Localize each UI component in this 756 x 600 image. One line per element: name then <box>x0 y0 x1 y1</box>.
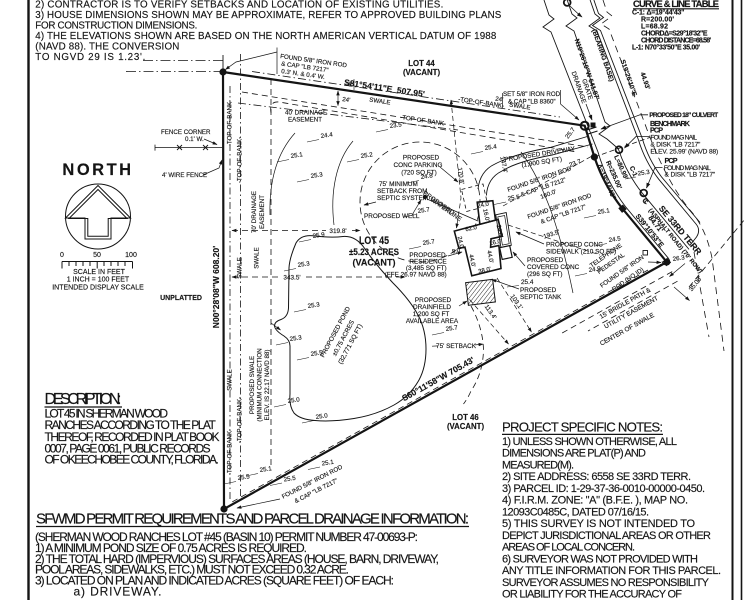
svg-text:-TOP-OF-BANK-: -TOP-OF-BANK- <box>237 137 244 183</box>
svg-text:L-1: N70°33'50"E 35.00': L-1: N70°33'50"E 35.00' <box>632 44 700 52</box>
svg-text:DEPICT JURISDICTIONAL AREAS OR: DEPICT JURISDICTIONAL AREAS OR OTHER <box>502 530 711 542</box>
svg-text:0.1' W.: 0.1' W. <box>185 136 204 143</box>
svg-text:25.7: 25.7 <box>445 324 458 333</box>
svg-text:PROPOSED WELL: PROPOSED WELL <box>364 213 420 220</box>
svg-text:CHORD DISTANCE=68.58': CHORD DISTANCE=68.58' <box>641 38 711 45</box>
svg-text:EASEMENT: EASEMENT <box>259 195 266 229</box>
svg-text:SURVEYOR ASSUMES NO RESPONSIBI: SURVEYOR ASSUMES NO RESPONSIBILITY <box>502 577 710 589</box>
svg-text:SWALE: SWALE <box>254 247 261 268</box>
svg-text:C-1: Δ=19°44'43": C-1: Δ=19°44'43" <box>632 9 685 17</box>
svg-text:25.9: 25.9 <box>312 231 325 240</box>
svg-text:1) UNLESS SHOWN OTHERWISE, ALL: 1) UNLESS SHOWN OTHERWISE, ALL <box>502 436 677 448</box>
svg-text:PROPOSED: PROPOSED <box>520 287 557 294</box>
svg-text:25.4: 25.4 <box>484 143 497 152</box>
svg-text:44.0': 44.0' <box>467 254 476 268</box>
svg-text:(FFE 26.97 NAVD 88): (FFE 26.97 NAVD 88) <box>385 272 447 279</box>
svg-text:113.4': 113.4' <box>483 303 498 320</box>
svg-text:100: 100 <box>125 252 137 259</box>
svg-text:UNPLATTED: UNPLATTED <box>160 295 202 302</box>
svg-text:24': 24' <box>342 96 351 104</box>
svg-text:CHORDΔ=S29°18'32"E: CHORDΔ=S29°18'32"E <box>641 30 708 38</box>
svg-text:4' WIRE FENCE: 4' WIRE FENCE <box>162 172 207 179</box>
svg-text:LOT 46: LOT 46 <box>452 413 479 422</box>
svg-text:25.5: 25.5 <box>237 473 250 482</box>
svg-text:4) F.I.R.M. ZONE: "A" (B.F.E.: 4) F.I.R.M. ZONE: "A" (B.F.E. ), MAP NO. <box>502 495 688 507</box>
svg-text:COVERED CONC: COVERED CONC <box>527 264 580 271</box>
svg-text:0: 0 <box>60 252 64 259</box>
svg-text:DRAINFIELD: DRAINFIELD <box>413 304 451 311</box>
svg-text:& DISK "LB 7217": & DISK "LB 7217" <box>650 141 701 148</box>
svg-text:25.0: 25.0 <box>315 412 328 421</box>
svg-text:25.1: 25.1 <box>290 151 303 160</box>
svg-text:12093C0485C, DATED 07/16/15.: 12093C0485C, DATED 07/16/15. <box>502 507 649 519</box>
svg-text:ELEV. 25.99' (NAVD 88): ELEV. 25.99' (NAVD 88) <box>650 148 718 155</box>
svg-text:TO NGVD 29 IS 1.23'.: TO NGVD 29 IS 1.23'. <box>35 52 145 63</box>
svg-text:70' DRAINAGE: 70' DRAINAGE <box>251 191 258 233</box>
svg-text:-TOP-OF-BANK-: -TOP-OF-BANK- <box>227 429 234 475</box>
svg-text:-TOP-OF-BANK-: -TOP-OF-BANK- <box>227 100 234 146</box>
svg-text:& CAP "LB 8360": & CAP "LB 8360" <box>508 99 556 106</box>
svg-text:SIDEWALK (210 SQ FT): SIDEWALK (210 SQ FT) <box>546 249 616 256</box>
svg-text:SET 5/8" IRON ROD: SET 5/8" IRON ROD <box>503 91 561 98</box>
svg-text:25.3: 25.3 <box>310 171 323 180</box>
svg-text:25.3: 25.3 <box>307 301 320 310</box>
svg-text:SWALE: SWALE <box>237 257 244 278</box>
svg-text:25.3: 25.3 <box>297 260 310 269</box>
svg-text:50: 50 <box>93 252 101 259</box>
svg-text:PROPOSED: PROPOSED <box>403 155 440 162</box>
svg-text:SETBACK FROM: SETBACK FROM <box>377 188 427 195</box>
svg-text:24.8: 24.8 <box>420 172 433 181</box>
svg-text:343.5': 343.5' <box>283 275 300 282</box>
svg-text:PROPOSED CONC: PROPOSED CONC <box>546 242 603 249</box>
svg-text:L=68.92: L=68.92 <box>641 24 668 31</box>
svg-text:(VACANT): (VACANT) <box>447 422 485 431</box>
svg-text:319.8': 319.8' <box>329 228 346 235</box>
svg-text:DIMENSIONS ARE PLAT(P) AND: DIMENSIONS ARE PLAT(P) AND <box>502 448 646 460</box>
svg-text:25.1: 25.1 <box>597 207 610 216</box>
svg-text:PROPOSED: PROPOSED <box>527 257 564 264</box>
svg-text:(VACANT): (VACANT) <box>403 68 441 77</box>
svg-text:25.5: 25.5 <box>283 475 296 484</box>
svg-text:PROJECT SPECIFIC NOTES:: PROJECT SPECIFIC NOTES: <box>502 420 663 435</box>
svg-text:25.3: 25.3 <box>289 334 302 343</box>
svg-text:PROPOSED: PROPOSED <box>415 297 452 304</box>
svg-text:SWALE: SWALE <box>369 97 391 107</box>
svg-text:3) PARCEL ID: 1-29-37-36-0010-: 3) PARCEL ID: 1-29-37-36-0010-00000-0450… <box>502 483 705 495</box>
svg-text:24.4: 24.4 <box>320 131 333 140</box>
svg-text:25.7: 25.7 <box>417 206 430 215</box>
svg-text:25.7: 25.7 <box>422 238 435 247</box>
svg-text:S19°26'10"E: S19°26'10"E <box>619 59 639 98</box>
svg-text:25.4: 25.4 <box>521 279 534 286</box>
svg-text:LOT 44: LOT 44 <box>408 59 435 68</box>
svg-text:35.00': 35.00' <box>688 275 704 293</box>
svg-text:& DISK "LB 7217": & DISK "LB 7217" <box>665 171 716 178</box>
svg-text:EASEMENT: EASEMENT <box>288 117 322 124</box>
svg-text:FENCE CORNER: FENCE CORNER <box>161 129 211 136</box>
svg-text:40' DRAINAGE: 40' DRAINAGE <box>285 110 327 117</box>
svg-text:R=200.00': R=200.00' <box>641 17 674 24</box>
svg-text:MEASURED(M).: MEASURED(M). <box>502 460 574 472</box>
svg-text:18': 18' <box>345 82 353 89</box>
svg-text:6) SURVEYOR WAS NOT PROVIDED W: 6) SURVEYOR WAS NOT PROVIDED WITH <box>502 554 698 566</box>
svg-text:S60°11'58"W 705.43': S60°11'58"W 705.43' <box>400 355 476 403</box>
svg-text:(296 SQ FT): (296 SQ FT) <box>527 271 563 278</box>
svg-text:a) DRIVEWAY.: a) DRIVEWAY. <box>74 584 162 598</box>
svg-text:2) CONTRACTOR IS TO VERIFY SET: 2) CONTRACTOR IS TO VERIFY SETBACKS AND … <box>35 0 443 10</box>
svg-text:NORTH: NORTH <box>62 161 133 179</box>
svg-text:3) HOUSE DIMENSIONS SHOWN MAY: 3) HOUSE DIMENSIONS SHOWN MAY BE APPROXI… <box>35 10 501 21</box>
svg-text:ANY TITLE INFORMATION FOR THIS: ANY TITLE INFORMATION FOR THIS PARCEL. <box>502 565 721 577</box>
svg-text:PROPOSED SWALE: PROPOSED SWALE <box>249 356 256 414</box>
svg-text:(VACANT): (VACANT) <box>353 258 396 269</box>
svg-text:FOR CONSTRUCTION DIMENSIONS.: FOR CONSTRUCTION DIMENSIONS. <box>35 20 197 31</box>
svg-text:OR LIABILITY FOR THE ACCURACY: OR LIABILITY FOR THE ACCURACY OF <box>502 589 682 600</box>
svg-text:DESCRIPTION:: DESCRIPTION: <box>45 391 122 408</box>
svg-text:23.7: 23.7 <box>568 158 582 169</box>
svg-text:AREAS OF LOCAL CONCERN.: AREAS OF LOCAL CONCERN. <box>502 542 635 554</box>
svg-text:4) THE ELEVATIONS SHOWN ARE BA: 4) THE ELEVATIONS SHOWN ARE BASED ON THE… <box>35 31 497 42</box>
svg-text:±5.23 ACRES: ±5.23 ACRES <box>349 247 399 258</box>
svg-text:INTENDED DISPLAY SCALE: INTENDED DISPLAY SCALE <box>52 285 144 292</box>
svg-text:(NAVD 88). THE CONVERSION: (NAVD 88). THE CONVERSION <box>35 42 179 53</box>
svg-text:170.8': 170.8' <box>456 167 465 184</box>
svg-text:25.0: 25.0 <box>287 396 300 405</box>
svg-text:N00°28'08"W 608.20': N00°28'08"W 608.20' <box>211 246 221 328</box>
svg-text:1,200 SQ FT: 1,200 SQ FT <box>413 311 450 318</box>
svg-text:WATERLINE: WATERLINE <box>429 196 463 223</box>
svg-text:OF OKEECHOBEE COUNTY, FLORIDA.: OF OKEECHOBEE COUNTY, FLORIDA. <box>45 453 219 467</box>
svg-text:-TOP-OF-BANK-: -TOP-OF-BANK- <box>237 397 244 443</box>
svg-text:2) SITE ADDRESS: 6558 SE 33RD: 2) SITE ADDRESS: 6558 SE 33RD TERR. <box>502 471 691 483</box>
svg-text:25.1: 25.1 <box>321 459 334 468</box>
svg-text:PCP: PCP <box>650 126 663 135</box>
svg-text:44.93': 44.93' <box>638 71 651 91</box>
svg-text:25.1: 25.1 <box>259 465 272 474</box>
svg-text:25.3: 25.3 <box>637 169 650 178</box>
svg-text:26.3: 26.3 <box>672 254 685 263</box>
svg-text:1 INCH = 100 FEET: 1 INCH = 100 FEET <box>67 277 130 284</box>
svg-text:25.2: 25.2 <box>360 151 373 160</box>
svg-text:5) THIS SURVEY IS NOT INTENDED: 5) THIS SURVEY IS NOT INTENDED TO <box>502 518 695 530</box>
svg-text:SEPTIC TANK: SEPTIC TANK <box>520 294 562 301</box>
svg-text:23.5: 23.5 <box>389 121 402 130</box>
svg-text:AVAILABLE AREA: AVAILABLE AREA <box>406 318 459 325</box>
svg-text:75' SETBACK: 75' SETBACK <box>436 343 477 350</box>
svg-text:SWALE: SWALE <box>227 369 234 390</box>
svg-text:25.5: 25.5 <box>507 194 520 203</box>
svg-text:193.5': 193.5' <box>543 229 561 241</box>
svg-text:38.0': 38.0' <box>478 267 492 276</box>
svg-text:SCALE IN FEET: SCALE IN FEET <box>73 269 125 276</box>
svg-text:25.7: 25.7 <box>564 126 577 140</box>
svg-text:(MINIMUM CONNECTION: (MINIMUM CONNECTION <box>257 348 264 421</box>
svg-text:ELEV. IS 22.17 NAVD 88): ELEV. IS 22.17 NAVD 88) <box>264 350 271 421</box>
svg-text:CONC PARKING: CONC PARKING <box>394 162 443 169</box>
svg-text:SFWMD PERMIT REQUIREMENTS AND: SFWMD PERMIT REQUIREMENTS AND PARCEL DRA… <box>36 511 469 528</box>
